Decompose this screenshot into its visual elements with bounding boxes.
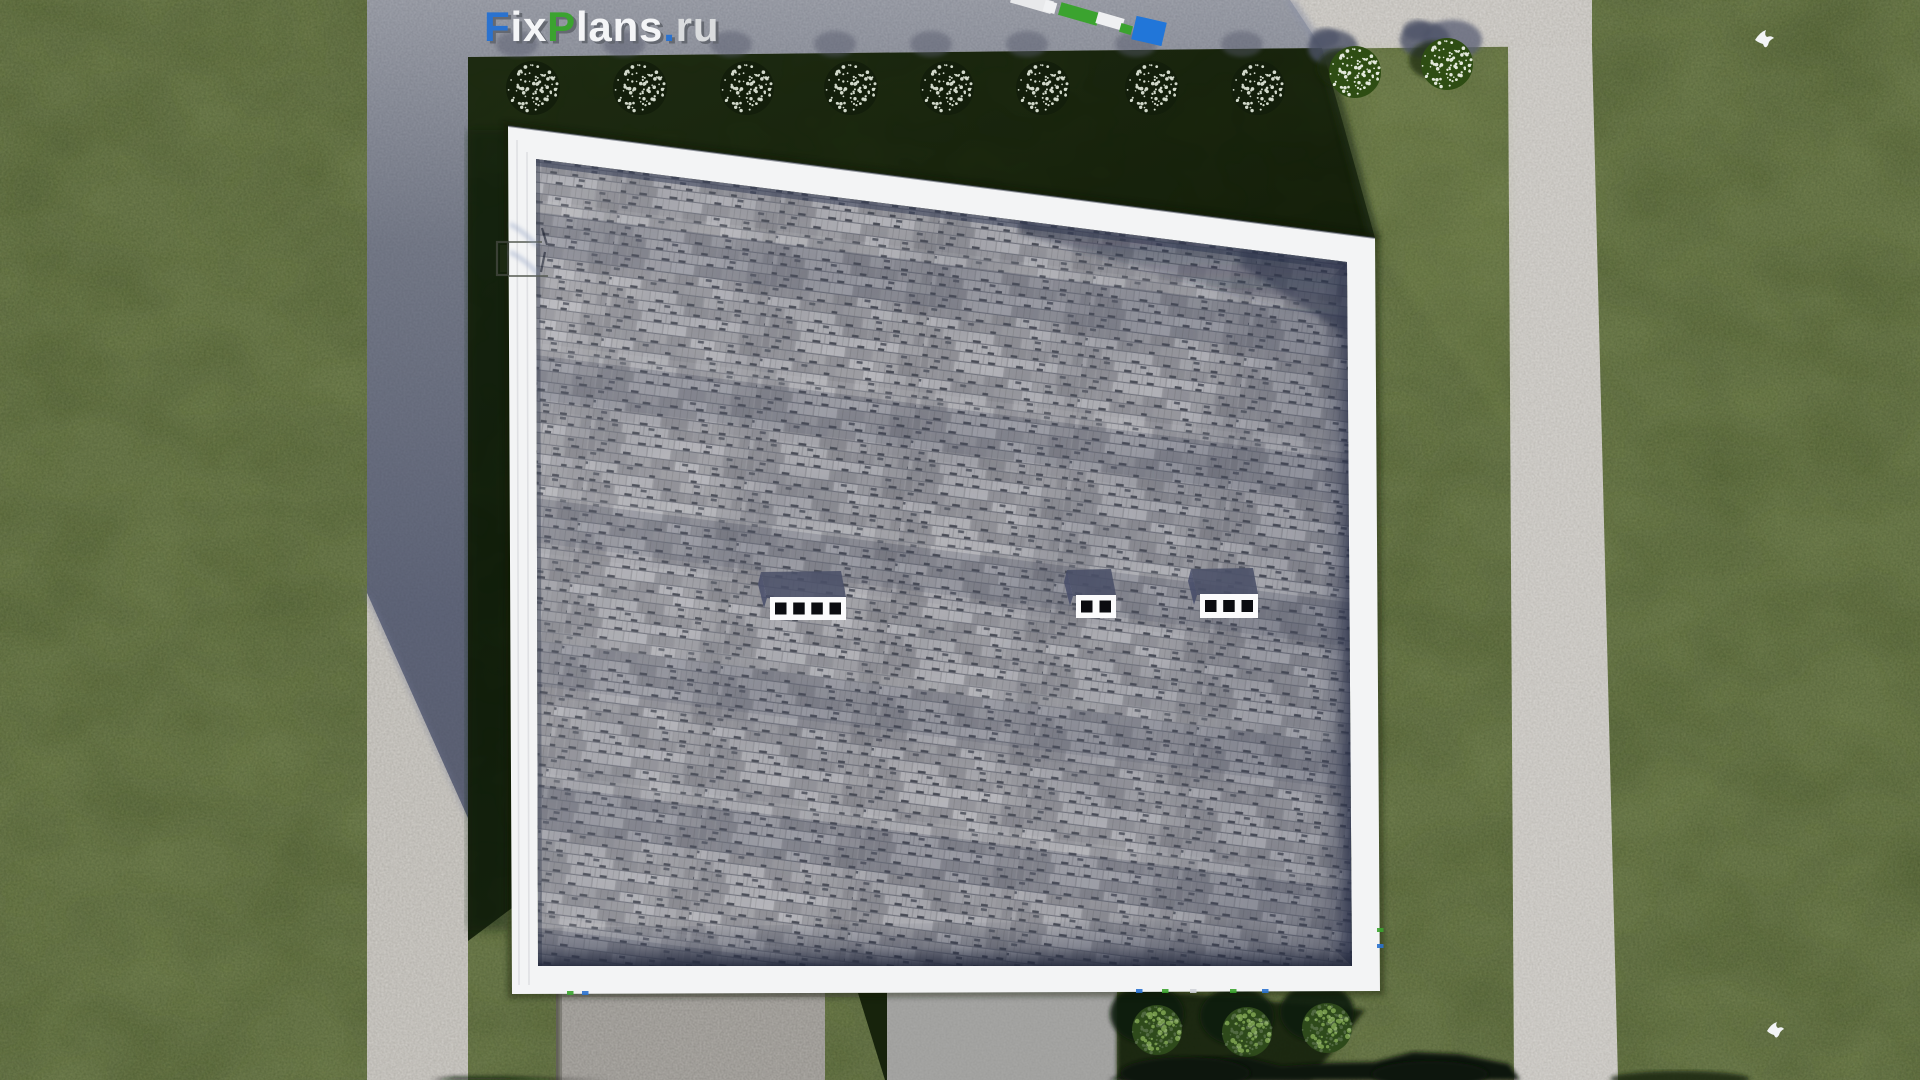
svg-text:FixPlans.ru: FixPlans.ru bbox=[484, 3, 719, 50]
